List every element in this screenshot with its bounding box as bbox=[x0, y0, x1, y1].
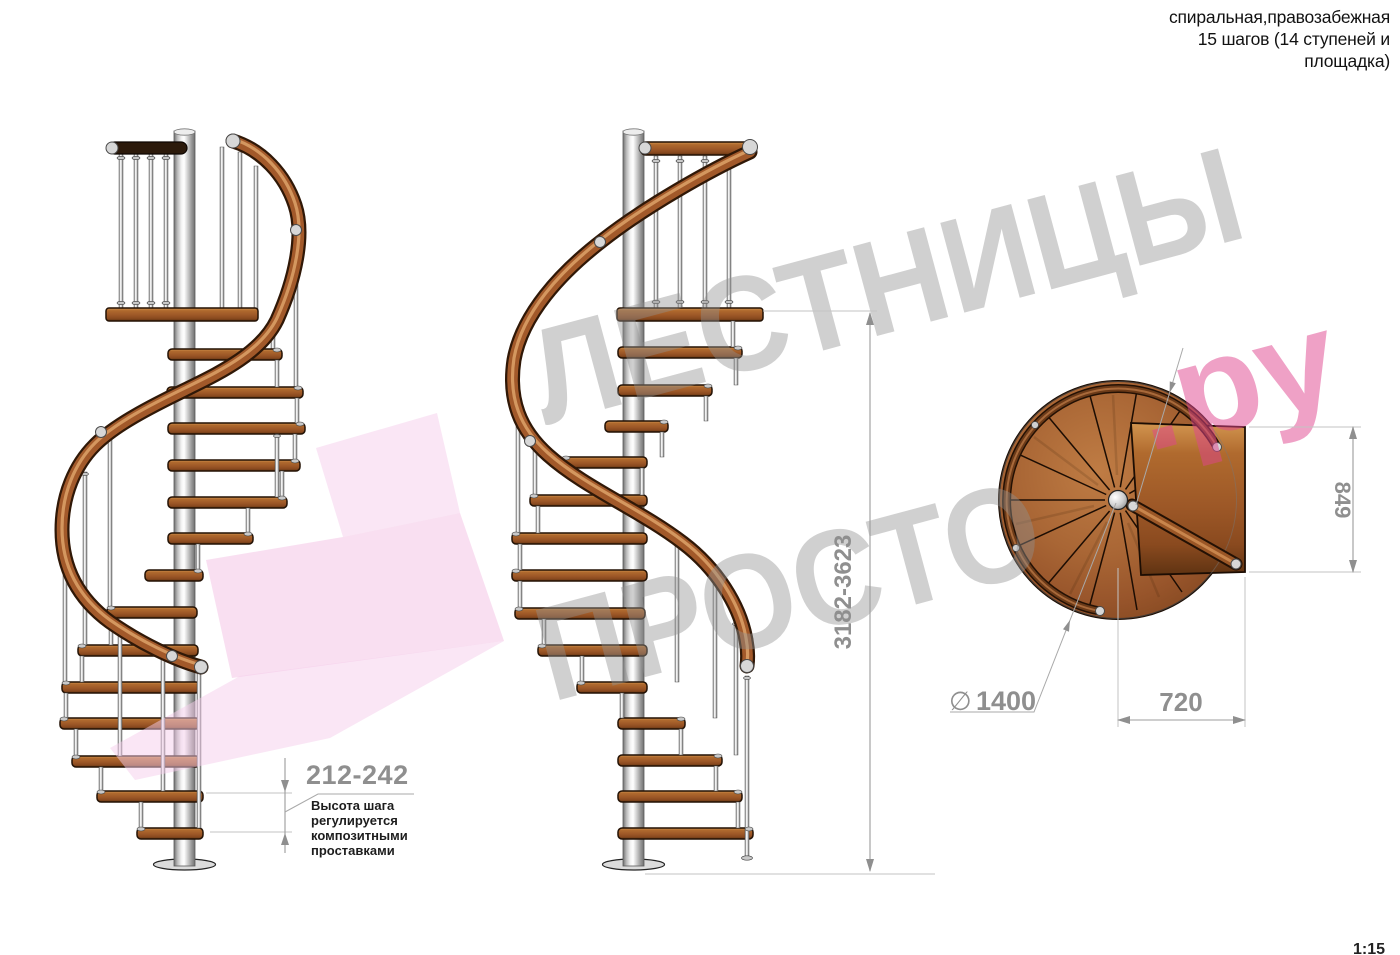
center-elevation-view bbox=[512, 129, 763, 870]
handrail-top-cap bbox=[226, 134, 240, 148]
handrail-end-cap bbox=[195, 661, 208, 674]
rail-end-cap bbox=[639, 142, 651, 154]
title-line: 15 шагов (14 ступеней и bbox=[1169, 28, 1390, 50]
note-line: композитными bbox=[311, 828, 408, 843]
note-line: проставками bbox=[311, 843, 408, 858]
handrail-top-cap bbox=[743, 140, 758, 155]
platform bbox=[106, 308, 258, 321]
handrail-sleeve bbox=[595, 237, 606, 248]
rail-end-cap bbox=[106, 142, 118, 154]
drawing-canvas: ЛЕСТНИЦЫ ПРОСТО .ру 3182 bbox=[0, 0, 1400, 955]
handrail-sleeve bbox=[167, 651, 178, 662]
landing-width-value: 720 bbox=[1159, 687, 1202, 717]
handrail-sleeve bbox=[291, 225, 302, 236]
handrail-sleeve bbox=[525, 436, 536, 447]
title-block: спиральная,правозабежная 15 шагов (14 ст… bbox=[1169, 6, 1390, 72]
staircase-drawing: ЛЕСТНИЦЫ ПРОСТО .ру 3182 bbox=[0, 0, 1400, 955]
diameter-value: 1400 bbox=[976, 686, 1036, 716]
note-line: регулируется bbox=[311, 813, 408, 828]
step-height-note: Высота шага регулируется композитными пр… bbox=[311, 798, 408, 858]
total-height-value: 3182-3623 bbox=[830, 535, 857, 650]
scale-label: 1:15 bbox=[1353, 941, 1385, 955]
handrail-sleeve bbox=[96, 427, 107, 438]
note-line: Высота шага bbox=[311, 798, 408, 813]
step-height-value: 212-242 bbox=[306, 760, 409, 791]
pole-top-cap bbox=[174, 129, 195, 135]
title-line: площадка) bbox=[1169, 50, 1390, 72]
title-line: спиральная,правозабежная bbox=[1169, 6, 1390, 28]
diameter-symbol: ∅ bbox=[949, 687, 972, 717]
pole-top-cap bbox=[623, 129, 644, 135]
platform-top-rail bbox=[109, 142, 187, 154]
center-pole-plan bbox=[1109, 491, 1128, 510]
platform-depth-value: 849 bbox=[1330, 482, 1355, 519]
